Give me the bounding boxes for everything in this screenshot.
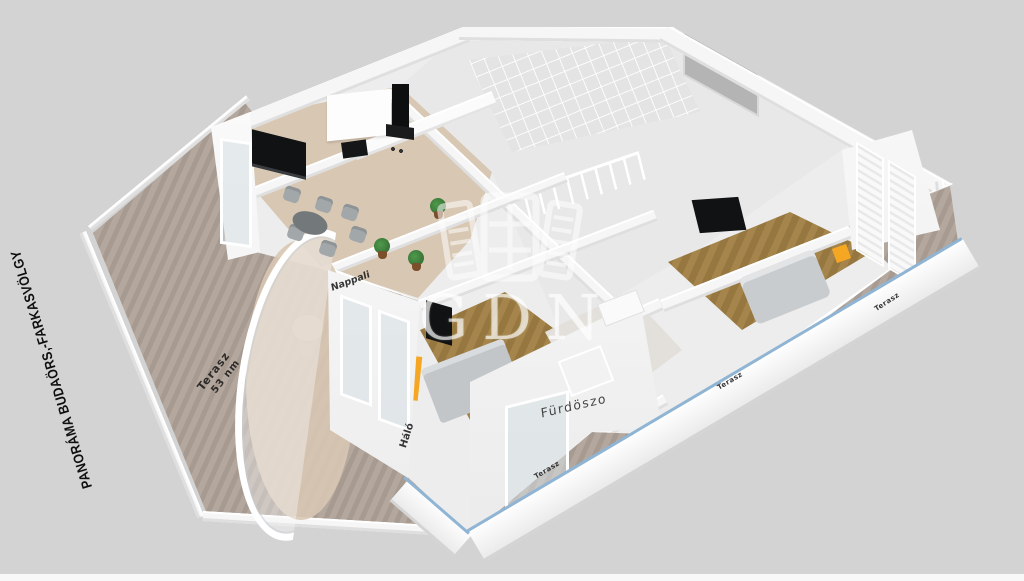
plant-1 bbox=[374, 238, 390, 254]
bottom-strip bbox=[0, 574, 1024, 581]
window-bedroom-front-1 bbox=[340, 294, 372, 407]
floorplan-scene: Terasz 53 nm Nappali Háló Fürdöszo Teras… bbox=[0, 0, 1024, 581]
wall-top-back bbox=[459, 24, 675, 43]
cooktop-burners bbox=[390, 146, 406, 154]
closet-slat-door-1 bbox=[856, 142, 884, 268]
listing-title: PANORÁMA BUDAÖRS,-FARKASVÖLGY bbox=[7, 248, 95, 490]
microwave bbox=[341, 139, 368, 158]
tv-right-bedroom bbox=[692, 197, 747, 233]
window-living-west bbox=[220, 138, 252, 248]
gdn-watermark: GDN bbox=[392, 192, 627, 348]
gdn-watermark-text: GDN bbox=[392, 289, 627, 348]
gdn-shutter-logo-icon bbox=[435, 192, 585, 284]
kitchen-cabinet bbox=[327, 89, 391, 142]
